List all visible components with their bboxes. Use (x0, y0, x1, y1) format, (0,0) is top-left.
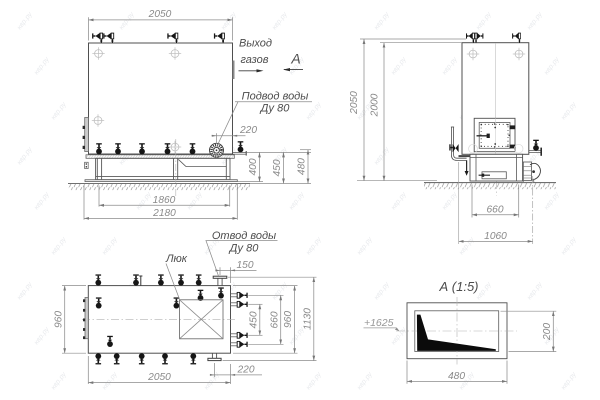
svg-text:Люк: Люк (165, 253, 188, 265)
svg-text:200: 200 (542, 323, 553, 341)
svg-text:480: 480 (448, 371, 465, 382)
svg-text:А (1:5): А (1:5) (438, 279, 478, 294)
svg-text:1860: 1860 (153, 195, 176, 206)
svg-text:Отвод воды: Отвод воды (212, 230, 276, 242)
svg-text:660: 660 (269, 311, 280, 328)
svg-text:2180: 2180 (152, 208, 176, 219)
svg-text:1130: 1130 (302, 308, 313, 330)
svg-text:220: 220 (239, 125, 257, 136)
svg-text:Ду 80: Ду 80 (228, 243, 260, 255)
svg-text:960: 960 (53, 311, 64, 328)
svg-text:+1625: +1625 (364, 317, 394, 329)
svg-text:400: 400 (248, 158, 259, 175)
svg-text:2000: 2000 (369, 93, 380, 117)
svg-text:450: 450 (248, 311, 259, 328)
svg-text:2050: 2050 (148, 9, 172, 20)
svg-text:газов: газов (240, 54, 268, 66)
svg-text:2050: 2050 (147, 372, 171, 383)
svg-text:150: 150 (237, 260, 254, 271)
svg-text:1060: 1060 (484, 231, 507, 242)
svg-text:А: А (290, 51, 300, 67)
svg-text:220: 220 (237, 364, 255, 375)
svg-text:Подвод воды: Подвод воды (242, 90, 309, 102)
svg-text:Ду 80: Ду 80 (259, 103, 291, 115)
svg-text:480: 480 (297, 158, 308, 175)
svg-text:660: 660 (487, 204, 504, 215)
svg-text:960: 960 (283, 311, 294, 328)
svg-text:2050: 2050 (349, 91, 360, 115)
svg-text:450: 450 (272, 159, 283, 176)
svg-text:Выход: Выход (239, 38, 272, 50)
